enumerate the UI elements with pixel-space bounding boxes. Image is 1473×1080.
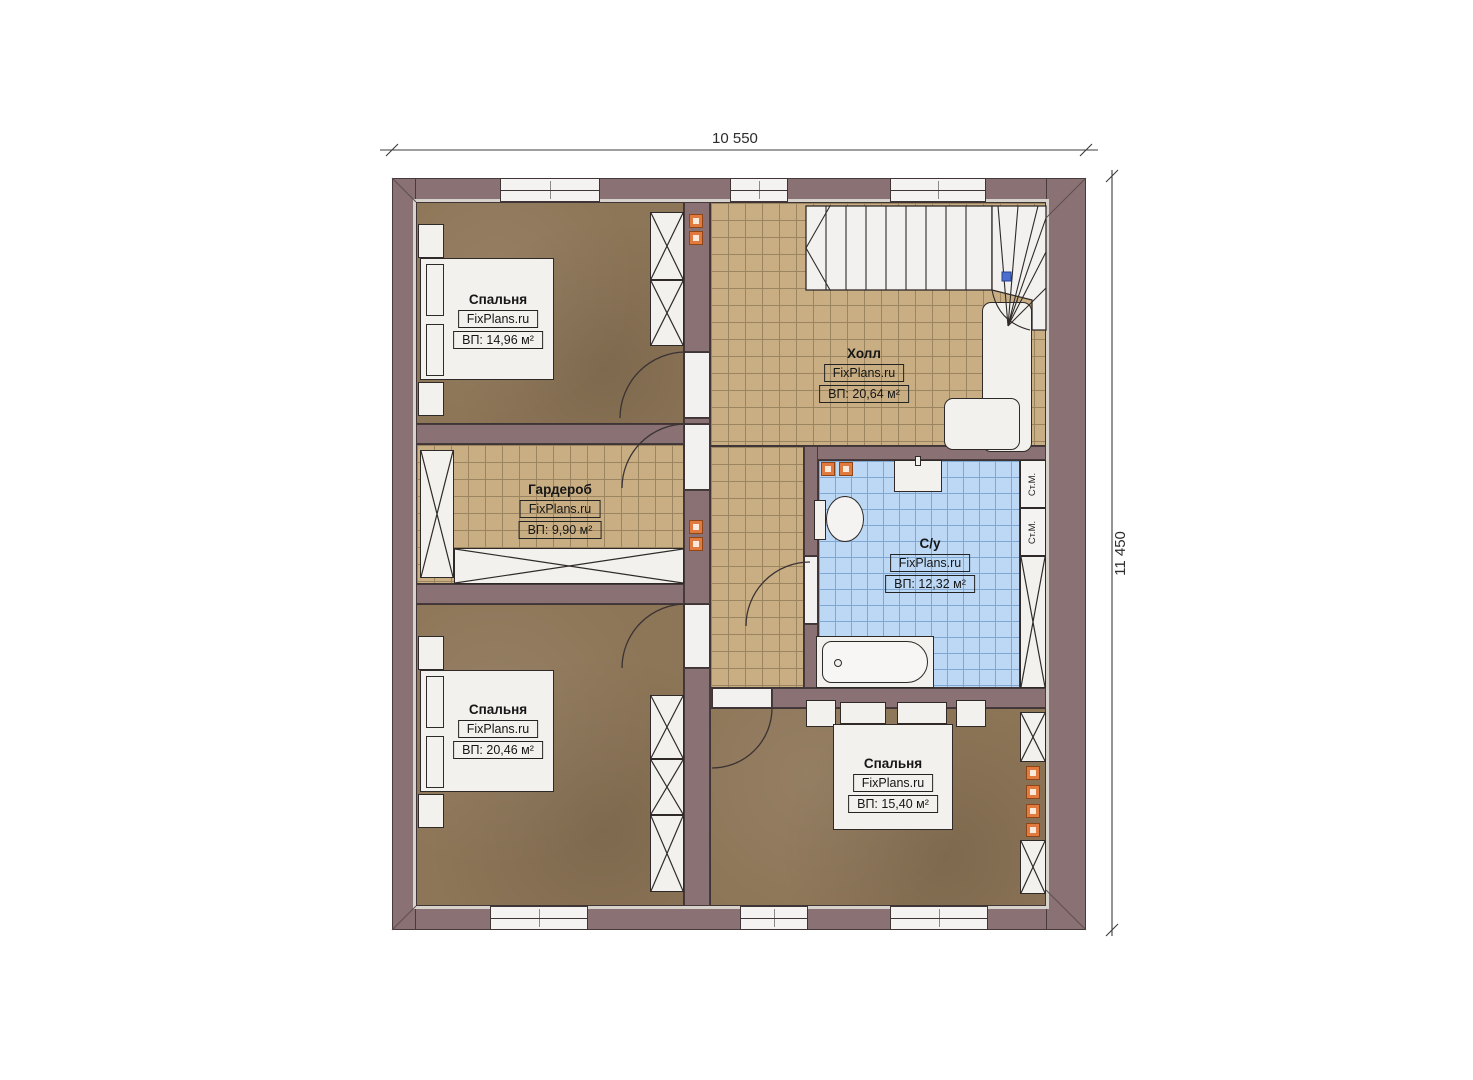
window — [490, 906, 588, 930]
vent-marker — [689, 231, 703, 245]
window — [890, 178, 986, 202]
vent-marker — [1026, 823, 1040, 837]
washing-machine-label: Ст.М. — [1027, 472, 1038, 495]
room-area: ВП: 20,46 м² — [453, 741, 543, 759]
wall-bedroom1-wardrobe — [416, 424, 684, 444]
wardrobe-cabinet — [650, 212, 684, 280]
watermark-fixplans: FixPlans.ru — [853, 774, 934, 792]
room-name: Гардероб — [528, 482, 592, 497]
dimension-label-width: 10 550 — [712, 130, 758, 147]
nightstand — [418, 636, 444, 670]
watermark-fixplans: FixPlans.ru — [458, 720, 539, 738]
exterior-wall-left — [392, 178, 416, 930]
room-label-bedroom-bottom-left: Спальня FixPlans.ru ВП: 20,46 м² — [453, 702, 543, 759]
vent-marker — [689, 520, 703, 534]
washing-machine-label: Ст.М. — [1027, 520, 1038, 543]
vent-marker — [1026, 766, 1040, 780]
washing-machine: Ст.М. — [1020, 460, 1046, 508]
wardrobe-cabinet — [1020, 712, 1046, 762]
wardrobe-cabinet — [454, 548, 684, 584]
room-label-bedroom-bottom-right: Спальня FixPlans.ru ВП: 15,40 м² — [848, 756, 938, 813]
room-name: Спальня — [864, 756, 922, 771]
window — [500, 178, 600, 202]
pillow — [426, 264, 444, 316]
window — [740, 906, 808, 930]
toilet-bowl — [826, 496, 864, 542]
wardrobe-cabinet — [650, 759, 684, 815]
door-opening-bedroom-bottom-right — [712, 688, 772, 708]
window — [890, 906, 988, 930]
toilet-tank — [814, 500, 826, 540]
pillow — [897, 702, 947, 724]
nightstand — [418, 224, 444, 258]
corridor-floor — [710, 446, 804, 688]
nightstand — [806, 700, 836, 727]
room-label-wardrobe: Гардероб FixPlans.ru ВП: 9,90 м² — [519, 482, 602, 539]
nightstand — [956, 700, 986, 727]
pillow — [426, 324, 444, 376]
sofa-seat — [944, 398, 1020, 450]
bathtub-drain — [834, 659, 842, 667]
nightstand — [418, 794, 444, 828]
room-area: ВП: 15,40 м² — [848, 795, 938, 813]
floor-plan: Ст.М. Ст.М. — [0, 0, 1473, 1080]
vent-marker — [1026, 804, 1040, 818]
room-name: Спальня — [469, 292, 527, 307]
washing-machine: Ст.М. — [1020, 508, 1046, 556]
vent-marker — [821, 462, 835, 476]
room-area: ВП: 12,32 м² — [885, 575, 975, 593]
exterior-wall-right — [1046, 178, 1086, 930]
wardrobe-cabinet — [1020, 840, 1046, 894]
room-area: ВП: 20,64 м² — [819, 385, 909, 403]
watermark-fixplans: FixPlans.ru — [824, 364, 905, 382]
wardrobe-cabinet — [420, 450, 454, 578]
watermark-fixplans: FixPlans.ru — [520, 500, 601, 518]
vent-marker — [689, 537, 703, 551]
room-name: Холл — [847, 346, 881, 361]
wall-wardrobe-bedroom2 — [416, 584, 684, 604]
spine-wall-segment — [684, 668, 710, 906]
wardrobe-cabinet — [650, 280, 684, 346]
sink-tap — [915, 456, 921, 466]
pillow — [426, 736, 444, 788]
room-name: С/у — [919, 536, 940, 551]
room-area: ВП: 14,96 м² — [453, 331, 543, 349]
wardrobe-cabinet — [650, 695, 684, 759]
room-name: Спальня — [469, 702, 527, 717]
wardrobe-cabinet — [1020, 556, 1046, 688]
door-opening-wardrobe — [684, 424, 710, 490]
vent-marker — [1026, 785, 1040, 799]
door-opening-bathroom — [804, 556, 818, 624]
room-area: ВП: 9,90 м² — [519, 521, 602, 539]
watermark-fixplans: FixPlans.ru — [890, 554, 971, 572]
vent-marker — [689, 214, 703, 228]
wardrobe-cabinet — [650, 815, 684, 892]
door-opening-bedroom-top-left — [684, 352, 710, 418]
room-label-bathroom: С/у FixPlans.ru ВП: 12,32 м² — [885, 536, 975, 593]
door-opening-bedroom-bottom-left — [684, 604, 710, 668]
room-label-bedroom-top-left: Спальня FixPlans.ru ВП: 14,96 м² — [453, 292, 543, 349]
watermark-fixplans: FixPlans.ru — [458, 310, 539, 328]
room-label-hall: Холл FixPlans.ru ВП: 20,64 м² — [819, 346, 909, 403]
pillow — [426, 676, 444, 728]
dimension-label-height: 11 450 — [1112, 531, 1129, 576]
window — [730, 178, 788, 202]
pillow — [840, 702, 886, 724]
nightstand — [418, 382, 444, 416]
vent-marker — [839, 462, 853, 476]
